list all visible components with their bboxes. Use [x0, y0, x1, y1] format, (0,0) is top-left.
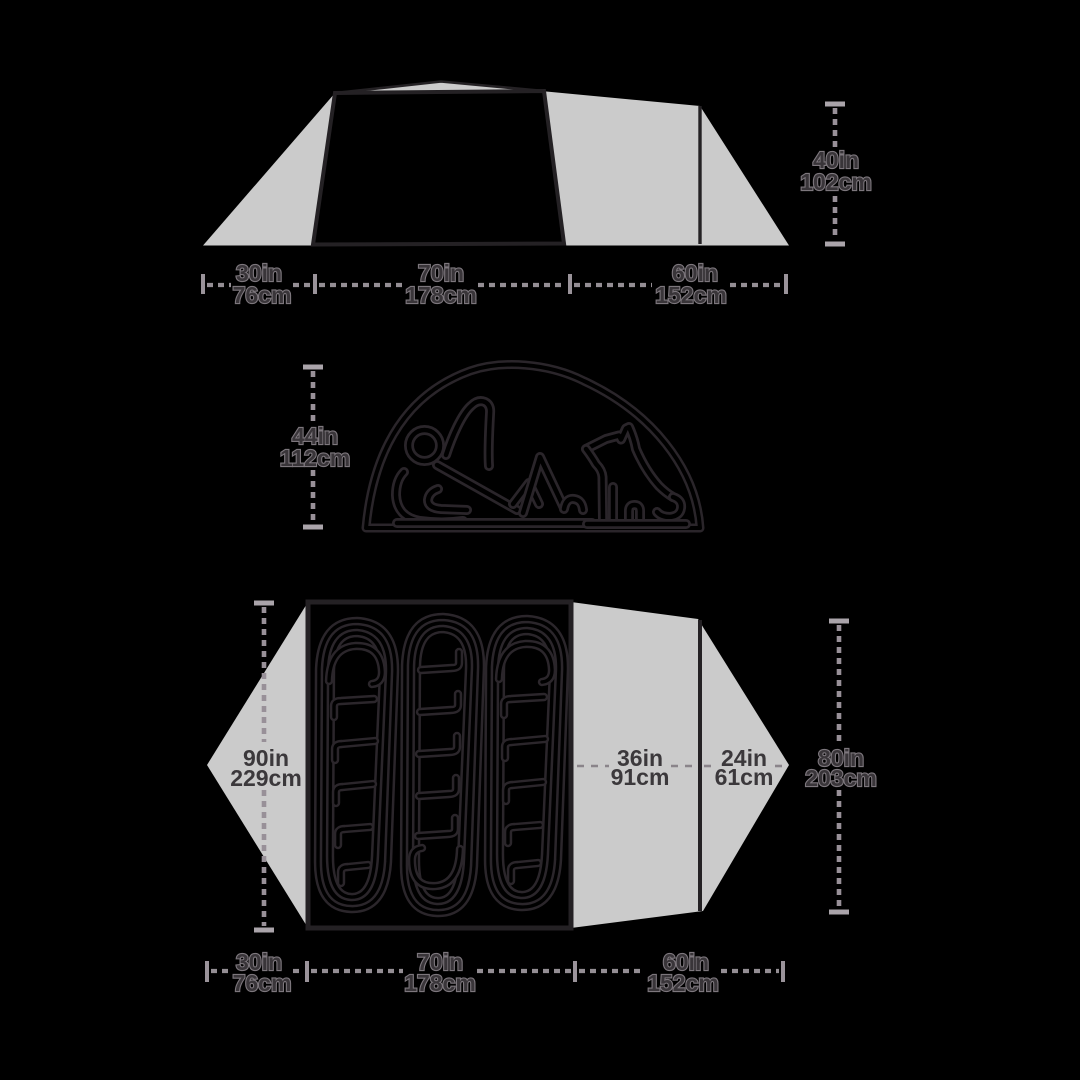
svg-text:112cm: 112cm [280, 445, 350, 471]
svg-text:61cm: 61cm [715, 764, 774, 790]
svg-text:76cm: 76cm [233, 282, 292, 308]
svg-text:152cm: 152cm [655, 282, 727, 308]
svg-text:102cm: 102cm [800, 169, 872, 195]
svg-text:76cm: 76cm [233, 970, 292, 996]
svg-text:91cm: 91cm [611, 764, 670, 790]
svg-text:229cm: 229cm [230, 765, 302, 791]
svg-text:203cm: 203cm [805, 765, 877, 791]
svg-text:152cm: 152cm [647, 970, 719, 996]
svg-text:178cm: 178cm [404, 970, 476, 996]
svg-text:178cm: 178cm [405, 282, 477, 308]
